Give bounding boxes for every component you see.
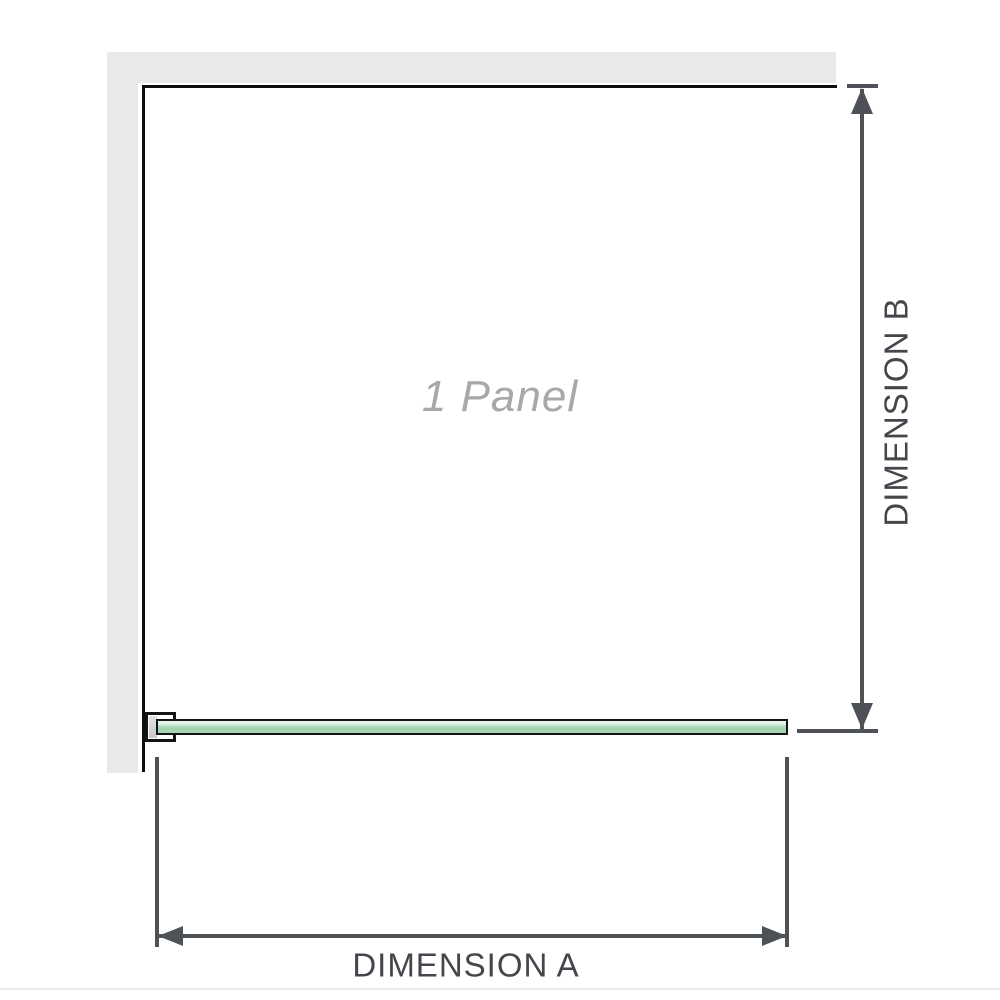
wall-left-strip <box>107 52 138 773</box>
dimension-b-line <box>860 89 864 730</box>
dimension-a-left-extension <box>155 757 159 947</box>
panel-count-label: 1 Panel <box>422 375 578 419</box>
shower-panel-diagram: 1 Panel DIMENSION B DIMENSION A <box>0 0 1000 1000</box>
dimension-b-bottom-tick <box>797 729 878 733</box>
panel-outline-left-edge <box>142 85 145 772</box>
dimension-a-right-extension <box>785 757 789 947</box>
arrow-up-icon <box>851 88 873 114</box>
wall-top-strip <box>107 52 836 83</box>
glass-panel-bar <box>156 719 788 735</box>
footer-divider-rule <box>0 988 1000 990</box>
arrow-right-icon <box>762 926 787 946</box>
dimension-a-line <box>159 934 787 938</box>
panel-outline-top-edge <box>142 85 837 88</box>
arrow-down-icon <box>851 703 873 729</box>
arrow-left-icon <box>158 926 183 946</box>
dimension-a-label: DIMENSION A <box>352 949 579 982</box>
dimension-b-label: DIMENSION B <box>880 297 913 526</box>
